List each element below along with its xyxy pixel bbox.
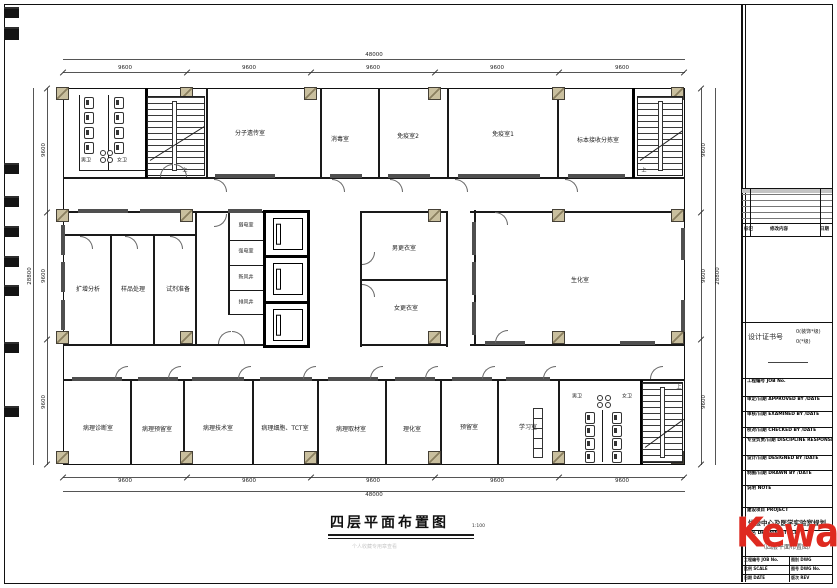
window-segment <box>215 174 275 178</box>
wall-segment <box>317 380 319 465</box>
divider <box>742 236 832 237</box>
column <box>56 451 69 464</box>
stair-rail <box>660 387 665 458</box>
title-block-row-label: 审核/日期 EXAMINED BY /DATE <box>742 412 832 418</box>
wall-segment <box>602 410 603 462</box>
dim-seg-v: 9600 <box>701 269 707 283</box>
revision-col-label: 修改内容 <box>770 226 788 232</box>
toilet-stall-icon <box>114 127 124 139</box>
title-underline <box>328 538 474 539</box>
wall-segment <box>378 88 380 178</box>
wall-segment <box>63 234 195 236</box>
room-label-path-cyto: 病理细胞、TCT室 <box>261 426 308 432</box>
dim-seg: 9600 <box>615 65 629 71</box>
revision-tag <box>4 196 19 207</box>
column <box>304 451 317 464</box>
room-label-wc-women-top: 女卫 <box>117 159 127 164</box>
title-block-row-label: 工程编号 JOB No. <box>742 379 832 385</box>
dim-seg: 9600 <box>366 478 380 484</box>
title-block-row: 校对/日期 CHECKED BY /DATE <box>742 427 832 437</box>
room-label-biochem: 生化室 <box>571 278 589 284</box>
column <box>671 331 684 344</box>
column <box>428 451 441 464</box>
room-label-path-sample: 病理取材室 <box>336 427 366 433</box>
room-label-strong-power: 强电室 <box>238 250 253 255</box>
title-block-row: 审核/日期 EXAMINED BY /DATE <box>742 411 832 427</box>
wall-segment <box>447 88 449 178</box>
room-label-wc-men-bottom: 男卫 <box>572 395 582 400</box>
sink-icon <box>100 157 106 163</box>
column <box>552 331 565 344</box>
info-cell: 版次 REV <box>791 575 809 581</box>
stair-wall <box>632 88 635 178</box>
wall-segment <box>252 380 254 465</box>
title-block-row: 审定/日期 APPROVED BY /DATE <box>742 396 832 411</box>
elevator-separator <box>266 301 307 304</box>
revision-tag <box>4 163 19 174</box>
sink-icon <box>107 150 113 156</box>
wall-segment <box>130 380 132 465</box>
note-label: 说明 NOTE <box>742 486 832 492</box>
sink-icon <box>597 395 603 401</box>
plan-title: 四层平面布置图 <box>330 512 449 532</box>
room-label-wc-men-top: 男卫 <box>81 159 91 164</box>
window-segment <box>388 174 430 178</box>
wall-segment <box>360 211 362 347</box>
wall-segment <box>153 234 155 345</box>
kewatt-logo: Kewatt <box>736 513 837 554</box>
room-label-change-men: 男更衣室 <box>392 246 416 252</box>
dim-seg: 9600 <box>242 65 256 71</box>
footer-note: 个人收藏专用章查看 <box>352 543 397 550</box>
room-label-path-tech: 病理技术室 <box>203 426 233 432</box>
stair-up-label: 上 <box>182 169 187 174</box>
room-label-immuno2: 免疫室2 <box>397 134 419 140</box>
elevator-car <box>273 218 303 250</box>
wall-segment <box>228 240 265 241</box>
window-segment <box>228 209 262 213</box>
toilet-stall-icon <box>84 97 94 109</box>
wall-segment <box>206 88 208 178</box>
revision-tag <box>4 27 19 40</box>
revision-tag <box>4 7 19 18</box>
column <box>180 331 193 344</box>
window-segment <box>681 300 685 332</box>
stair-up-label: 上 <box>676 386 681 391</box>
room-label-study: 学习室 <box>519 425 537 431</box>
column <box>304 87 317 100</box>
dim-seg-v: 9600 <box>41 269 47 283</box>
column <box>428 331 441 344</box>
toilet-stall-icon <box>612 425 622 437</box>
sink-icon <box>605 395 611 401</box>
dim-seg-v: 9600 <box>41 395 47 409</box>
title-block-row: 设计/日期 DESIGNED BY /DATE <box>742 455 832 470</box>
room-label-sample: 样品处理 <box>121 287 145 293</box>
divider <box>789 556 790 582</box>
room-label-weak-power: 弱电室 <box>238 224 253 229</box>
dimension-line <box>63 72 685 73</box>
dimension-line <box>33 88 34 465</box>
room-label-physchem: 理化室 <box>403 427 421 433</box>
title-block-row: 专业负责/日期 DISCIPLINE RESPONSIBLE BY /DATE <box>742 437 832 455</box>
dim-seg-v: 9600 <box>41 143 47 157</box>
info-cell: 图号 DWG No. <box>791 566 820 572</box>
column <box>552 209 565 222</box>
wall-segment <box>110 234 112 345</box>
window-segment <box>61 262 65 292</box>
title-block-row-label: 设计/日期 DESIGNED BY /DATE <box>742 456 832 462</box>
toilet-stall-icon <box>84 127 94 139</box>
dim-total-top: 48000 <box>365 52 383 58</box>
elevator-car <box>273 263 303 295</box>
dimension-line <box>47 88 48 465</box>
title-block-row-label: 审定/日期 APPROVED BY /DATE <box>742 397 832 403</box>
room-label-disinfect: 消毒室 <box>331 137 349 143</box>
wall-segment <box>228 290 265 291</box>
stair-up-label: 上 <box>641 169 646 174</box>
dim-seg: 9600 <box>366 65 380 71</box>
room-label-path-reserve: 病理预留室 <box>142 427 172 433</box>
signature-line <box>768 362 808 363</box>
column <box>671 209 684 222</box>
toilet-stall-icon <box>84 112 94 124</box>
room-label-exhaust: 排风井 <box>238 301 253 306</box>
toilet-stall-icon <box>585 451 595 463</box>
revision-tag <box>4 256 19 267</box>
column <box>428 209 441 222</box>
cert-label: 设计证书号 <box>748 332 783 342</box>
window-segment <box>472 262 476 295</box>
room-label-specimen: 标本接收分拣室 <box>577 138 619 144</box>
toilet-stall-icon <box>84 142 94 154</box>
wall-segment <box>228 314 265 315</box>
dim-seg: 9600 <box>118 65 132 71</box>
room-label-immuno1: 免疫室1 <box>492 132 514 138</box>
room-label-wc-women-bottom: 女卫 <box>622 395 632 400</box>
wall-segment <box>320 88 322 178</box>
info-cell: 比例 SCALE <box>744 566 768 572</box>
room-label-reserve: 预留室 <box>460 425 478 431</box>
wall-segment <box>497 380 499 465</box>
toilet-stall-icon <box>612 438 622 450</box>
elevator-shaft <box>263 210 310 348</box>
wall-segment <box>470 211 685 213</box>
stair-rail <box>172 101 177 171</box>
window-segment <box>192 377 244 381</box>
revision-col-label: 日期 <box>820 226 829 232</box>
window-segment <box>78 209 128 213</box>
window-segment <box>61 300 65 330</box>
window-segment <box>61 225 65 255</box>
room-label-amplify: 扩增分析 <box>76 287 100 293</box>
dim-seg-v: 9600 <box>701 395 707 409</box>
room-label-change-women: 女更衣室 <box>394 306 418 312</box>
wall-segment <box>446 211 448 347</box>
wall-segment <box>195 211 197 345</box>
drawing-sheet: 48000 48000 9600 9600 9600 9600 9600 960… <box>0 0 837 588</box>
elevator-car <box>273 309 303 341</box>
plan-scale: 1:100 <box>472 524 485 529</box>
toilet-stall-icon <box>612 451 622 463</box>
note-row: 说明 NOTE <box>742 485 832 507</box>
info-cell: 工程编号 JOB No. <box>744 557 778 563</box>
toilet-stall-icon <box>114 112 124 124</box>
revision-col-label: 标记 <box>744 226 753 232</box>
toilet-stall-icon <box>585 425 595 437</box>
column <box>56 87 69 100</box>
dim-seg: 9600 <box>490 65 504 71</box>
info-cell: 图别 DWG <box>791 557 811 563</box>
room-label-fresh-air: 新风井 <box>238 276 253 281</box>
window-segment <box>472 222 476 255</box>
cert-grade2: 0(*级) <box>796 338 811 345</box>
revision-tag <box>4 342 19 353</box>
divider <box>742 322 832 323</box>
wall-segment <box>360 344 447 346</box>
title-block-row-label: 专业负责/日期 DISCIPLINE RESPONSIBLE BY /DATE <box>742 438 832 444</box>
toilet-stall-icon <box>585 412 595 424</box>
title-underline <box>328 534 474 536</box>
wall-segment <box>385 380 387 465</box>
column <box>180 451 193 464</box>
wall-segment <box>228 211 230 315</box>
revision-tag <box>4 285 19 296</box>
sink-icon <box>597 402 603 408</box>
room-label-molecular: 分子遗传室 <box>235 131 265 137</box>
wall-segment <box>79 95 80 171</box>
title-block-row: 制图/日期 DRAWN BY /DATE <box>742 470 832 485</box>
title-block-row-label: 校对/日期 CHECKED BY /DATE <box>742 428 832 434</box>
sink-icon <box>107 157 113 163</box>
window-segment <box>458 174 540 178</box>
dim-seg: 9600 <box>615 478 629 484</box>
column <box>428 87 441 100</box>
toilet-stall-icon <box>585 438 595 450</box>
toilet-stall-icon <box>114 97 124 109</box>
dim-total-left: 28800 <box>27 267 33 285</box>
title-block-row: 工程编号 JOB No. <box>742 378 832 396</box>
wall-segment <box>360 279 447 281</box>
kewatt-logo-red: Kewa <box>736 510 837 557</box>
dim-seg: 9600 <box>118 478 132 484</box>
sink-icon <box>100 150 106 156</box>
revision-tag <box>4 226 19 237</box>
column <box>552 87 565 100</box>
window-segment <box>620 341 655 345</box>
dim-total-right: 28800 <box>715 267 721 285</box>
room-label-reagent: 试剂准备 <box>166 287 190 293</box>
wall-segment <box>557 88 559 178</box>
column <box>552 451 565 464</box>
revision-table <box>742 188 832 224</box>
elevator-separator <box>266 255 307 258</box>
column <box>56 331 69 344</box>
window-segment <box>681 228 685 260</box>
window-segment <box>568 174 625 178</box>
window-segment <box>330 174 362 178</box>
dim-total-bottom: 48000 <box>365 492 383 498</box>
cert-grade1: 0(装饰*级) <box>796 328 821 335</box>
dim-seg: 9600 <box>490 478 504 484</box>
stair-rail <box>658 101 663 171</box>
locker-strip <box>533 408 543 458</box>
window-segment <box>472 302 476 335</box>
toilet-stall-icon <box>612 412 622 424</box>
wall-segment <box>228 265 265 266</box>
room-label-path-diag: 病理诊断室 <box>83 426 113 432</box>
info-cell: 日期 DATE <box>744 575 765 581</box>
column <box>56 209 69 222</box>
dim-seg-v: 9600 <box>701 143 707 157</box>
dimension-line <box>63 59 685 60</box>
title-block-row-label: 制图/日期 DRAWN BY /DATE <box>742 471 832 477</box>
toilet-stall-icon <box>114 142 124 154</box>
sink-icon <box>605 402 611 408</box>
revision-tag <box>4 406 19 417</box>
wall-segment <box>79 170 145 171</box>
column <box>180 209 193 222</box>
dim-seg: 9600 <box>242 478 256 484</box>
